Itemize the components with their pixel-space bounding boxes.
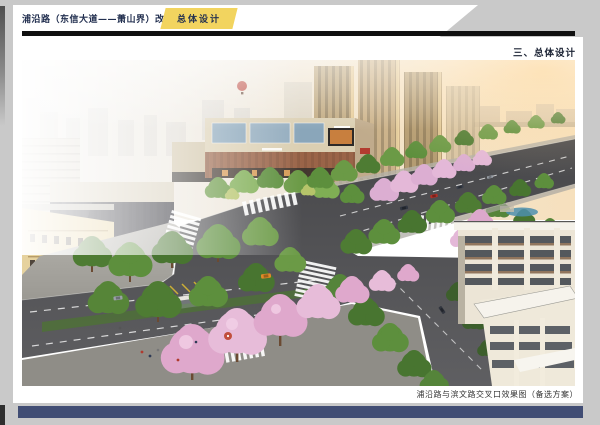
header-rule <box>22 31 575 36</box>
header-tag: 总体设计 <box>160 8 237 29</box>
figure-caption: 浦沿路与滨文路交叉口效果图（备选方案） <box>417 389 579 400</box>
footer-bar <box>18 406 583 418</box>
left-edge-accent-bottom <box>0 405 5 425</box>
slide-background: { "header": { "title": "浦沿路（东信大道——萧山界）改造… <box>0 0 600 425</box>
header-tag-label: 总体设计 <box>177 12 221 25</box>
left-edge-accent-top <box>0 6 5 126</box>
intersection-rendering <box>22 60 575 386</box>
section-heading: 三、总体设计 <box>513 45 576 59</box>
